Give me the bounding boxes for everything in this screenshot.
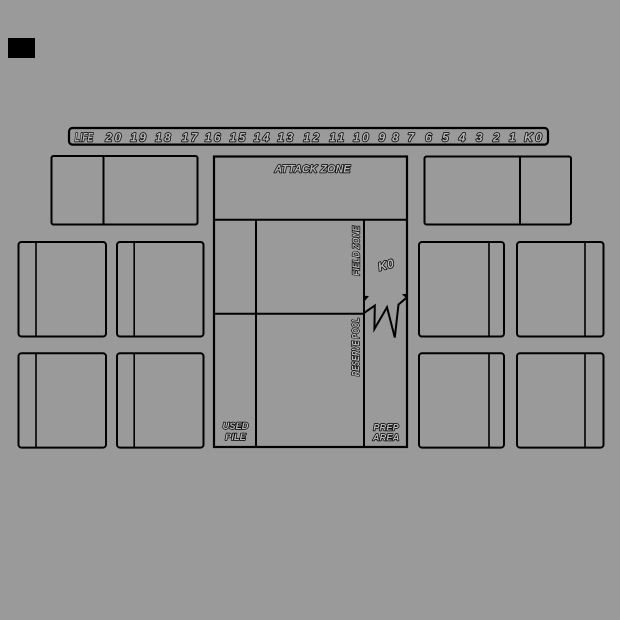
svg-text:2: 2 <box>492 131 502 145</box>
svg-text:19: 19 <box>130 131 148 145</box>
svg-text:5: 5 <box>442 131 451 145</box>
svg-text:13: 13 <box>277 131 295 145</box>
svg-text:8: 8 <box>392 131 401 145</box>
svg-text:ATTACK ZONE: ATTACK ZONE <box>274 164 351 176</box>
svg-text:20: 20 <box>104 131 123 145</box>
svg-text:PILE: PILE <box>225 431 247 442</box>
svg-text:4: 4 <box>458 131 468 145</box>
svg-text:6: 6 <box>425 131 434 145</box>
svg-text:FIELD ZONE: FIELD ZONE <box>351 225 362 275</box>
svg-text:3: 3 <box>476 131 485 145</box>
svg-text:LIFE: LIFE <box>75 131 94 145</box>
svg-text:K0: K0 <box>524 131 544 145</box>
svg-text:18: 18 <box>155 131 173 145</box>
svg-text:15: 15 <box>230 131 248 145</box>
svg-text:AREA: AREA <box>372 431 400 442</box>
svg-text:7: 7 <box>407 131 416 145</box>
svg-text:14: 14 <box>254 131 272 145</box>
svg-text:RESERVE POOL: RESERVE POOL <box>351 318 362 377</box>
svg-text:17: 17 <box>182 131 200 145</box>
svg-text:USED: USED <box>222 420 248 431</box>
svg-text:16: 16 <box>205 131 223 145</box>
svg-text:1: 1 <box>509 131 518 145</box>
svg-text:12: 12 <box>303 131 321 145</box>
svg-text:10: 10 <box>353 131 371 145</box>
svg-text:11: 11 <box>329 131 346 145</box>
svg-text:9: 9 <box>378 131 387 145</box>
